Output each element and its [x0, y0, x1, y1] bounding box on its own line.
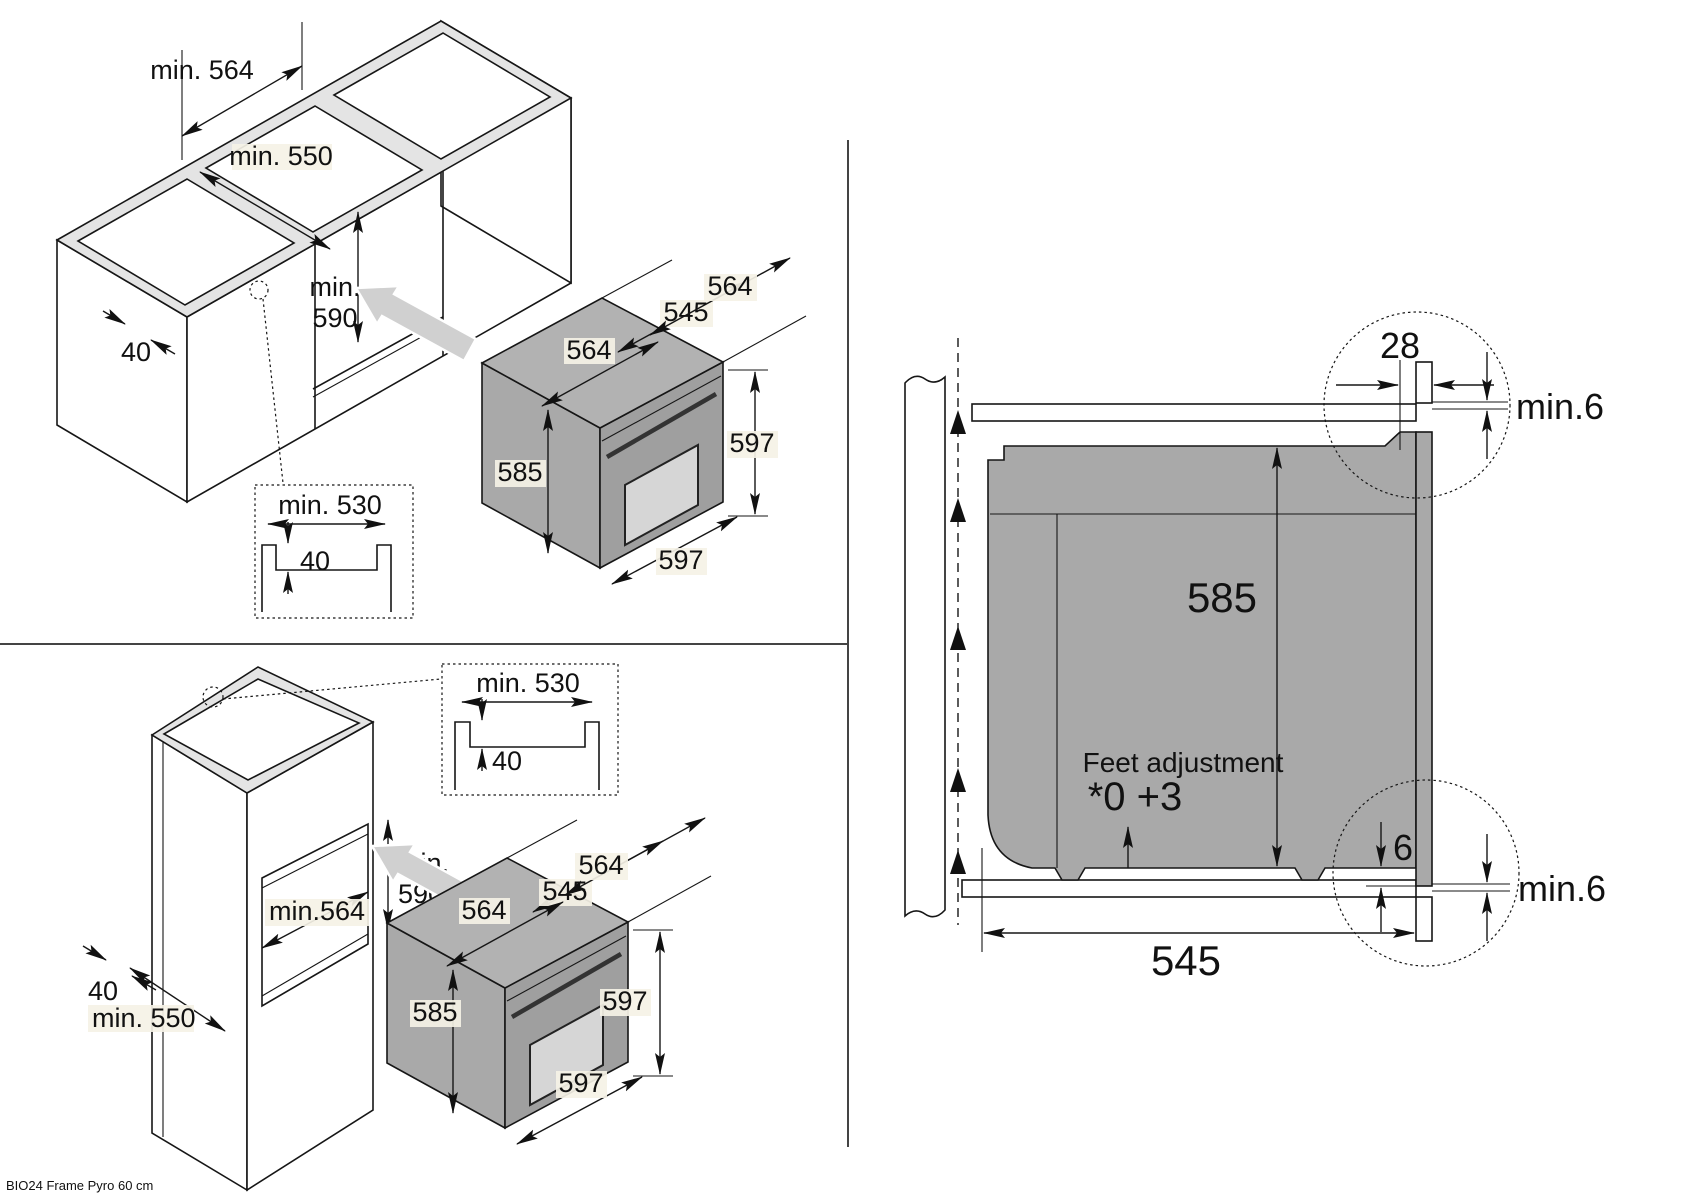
- airflow-arrow-icon: [950, 410, 966, 434]
- dim-height-front: 597: [729, 428, 774, 458]
- dim-niche-width: min.564: [269, 896, 365, 926]
- dim-width-top: 564: [566, 335, 611, 365]
- dim-bottom-clearance: min.6: [1518, 868, 1606, 909]
- dim-depth-body: 545: [663, 297, 708, 327]
- dim-frame-overlap: 28: [1380, 325, 1420, 366]
- airflow-arrow-icon: [950, 768, 966, 792]
- dim-height-body: 585: [497, 457, 542, 487]
- ext-line: [723, 316, 806, 362]
- ext-line: [507, 820, 577, 858]
- groove-profile: [455, 722, 599, 790]
- groove-detail-box: min. 530 40: [255, 485, 413, 618]
- dim-niche-depth: min. 550: [92, 1003, 196, 1033]
- dim-groove-depth: 40: [492, 746, 522, 776]
- groove-detail-box: min. 530 40: [442, 664, 618, 795]
- model-label: BIO24 Frame Pyro 60 cm: [6, 1178, 153, 1193]
- tall-cabinet-scene: min. 530 40 min.564 min. 590 40 min. 550…: [83, 664, 711, 1190]
- airflow-arrow-icon: [950, 626, 966, 650]
- front-frame-section: [1416, 432, 1432, 886]
- airflow-arrow-icon: [950, 498, 966, 522]
- dim-niche-depth: min. 550: [229, 141, 333, 171]
- dim-width-front: 597: [658, 545, 703, 575]
- dim-rail: 40: [88, 976, 118, 1006]
- wall-strip: [905, 376, 945, 916]
- frame-ext-top: [1416, 362, 1432, 403]
- dim-bottom-gap: 6: [1393, 827, 1413, 868]
- dim-rail-a: [83, 946, 106, 960]
- dim-groove-width: min. 530: [476, 668, 580, 698]
- section-scene: 28 min.6 585 Feet adjustment *0 +3 6 min…: [905, 312, 1606, 984]
- frame-ext-bottom: [1416, 897, 1432, 941]
- dim-groove-depth: 40: [300, 546, 330, 576]
- dim-depth: 545: [1151, 937, 1221, 984]
- diagram-canvas: min. 564 min. 550 min. 590 40 min. 530 4…: [0, 0, 1697, 1200]
- dim-groove-width: min. 530: [278, 490, 382, 520]
- shelf-section: [962, 880, 1416, 897]
- dim-depth-body: 545: [542, 876, 587, 906]
- feet-adjustment-note: Feet adjustment: [1083, 747, 1284, 778]
- dim-top-clearance: min.6: [1516, 386, 1604, 427]
- feet-adjustment-values: *0 +3: [1088, 775, 1183, 819]
- dim-width-top: 564: [461, 895, 506, 925]
- column-front-face: [152, 735, 247, 1190]
- under-counter-scene: min. 564 min. 550 min. 590 40 min. 530 4…: [57, 21, 806, 618]
- airflow-arrow-icon: [950, 850, 966, 874]
- dim-height: 585: [1187, 574, 1257, 621]
- dim-niche-width: min. 564: [150, 55, 254, 85]
- dim-width-front: 597: [558, 1068, 603, 1098]
- dim-niche-height-2: 590: [312, 303, 357, 333]
- dim-depth-top: 564: [707, 271, 752, 301]
- dim-height-front: 597: [602, 986, 647, 1016]
- dim-height-body: 585: [412, 997, 457, 1027]
- oven-body-section: [988, 432, 1416, 880]
- worktop-section: [972, 404, 1416, 421]
- ext-line: [602, 260, 672, 298]
- dim-niche-height-1: min.: [309, 272, 360, 302]
- installation-diagram-page: min. 564 min. 550 min. 590 40 min. 530 4…: [0, 0, 1697, 1200]
- dim-rail: 40: [121, 337, 151, 367]
- dim-depth-top: 564: [578, 850, 623, 880]
- ext-line: [628, 876, 711, 922]
